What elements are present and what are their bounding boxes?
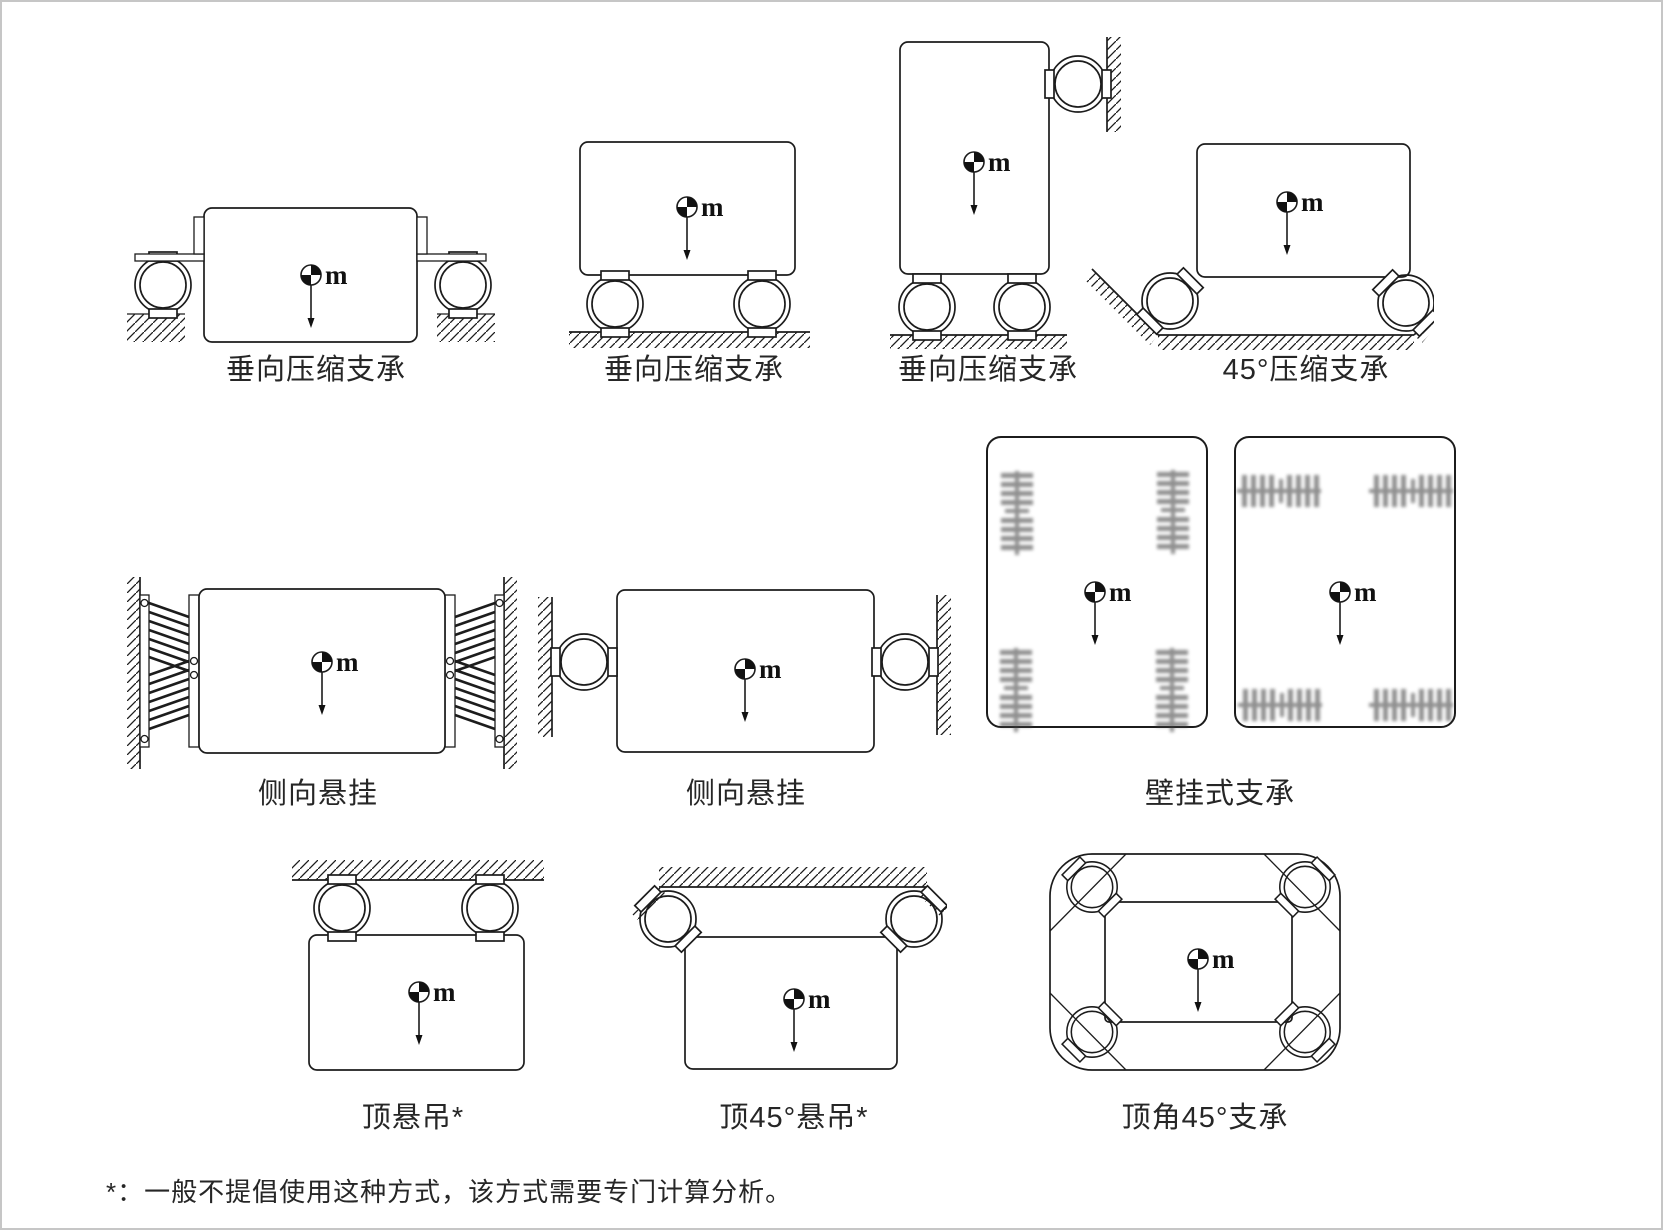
diagram-drawing: m: [602, 847, 947, 1087]
mass-label: m: [701, 192, 724, 222]
wire-rope-isolator-icon: [994, 274, 1050, 340]
hatched-wall: [127, 577, 140, 769]
diagram-caption: 顶悬吊*: [263, 1094, 563, 1136]
diagram-drawing: m: [552, 127, 822, 352]
mass-label: m: [1301, 187, 1324, 217]
diagram-caption: 垂向压缩支承: [166, 346, 466, 388]
diagram-caption: 顶角45°支承: [1055, 1094, 1355, 1136]
mass-label: m: [988, 147, 1011, 177]
flange-lip: [417, 217, 427, 254]
mounting-plate: [140, 595, 149, 747]
wire-rope-isolator-icon: [872, 634, 938, 690]
wire-rope-isolator-icon: [551, 634, 617, 690]
diagram-caption: 侧向悬挂: [168, 770, 468, 812]
isolator-mounting-diagram-page: m 垂向压缩支承 m 垂向压缩支承 m 垂向压缩支承: [0, 0, 1663, 1230]
mass-label: m: [325, 260, 348, 290]
diagram-caption: 顶45°悬吊*: [644, 1094, 944, 1136]
coil-spring-isolator-icon: [149, 603, 189, 729]
mass-label: m: [808, 984, 831, 1014]
diagram-drawing: m: [282, 842, 582, 1087]
diagram-lateral-suspension-coil: m: [127, 557, 517, 779]
hatched-wall: [538, 597, 552, 737]
mass-label: m: [336, 647, 359, 677]
diagram-drawing: m m: [982, 427, 1462, 739]
flange-plate: [417, 254, 486, 261]
flange-lip: [194, 217, 204, 254]
wire-rope-isolator-icon: [899, 274, 955, 340]
diagram-caption: 侧向悬挂: [596, 770, 896, 812]
wire-rope-isolator-icon: [462, 875, 518, 941]
flange-plate: [135, 254, 204, 261]
wire-rope-isolator-icon: [314, 875, 370, 941]
diagram-vertical-compression-flange-mount: m: [117, 197, 507, 357]
diagram-drawing: m: [1062, 127, 1434, 362]
diagram-top-suspension: m: [282, 842, 582, 1087]
diagram-caption: 垂向压缩支承: [544, 346, 844, 388]
diagram-top-45deg-suspension: m: [602, 847, 947, 1087]
mass-label: m: [1354, 577, 1377, 607]
diagram-compression-45deg: m: [1062, 127, 1434, 362]
hatched-slope: [1084, 269, 1158, 345]
diagram-drawing: m: [117, 197, 507, 357]
mass-label: m: [1109, 577, 1132, 607]
hatched-wall: [937, 595, 951, 735]
diagram-drawing: m: [127, 557, 517, 779]
mass-label: m: [1212, 944, 1235, 974]
mass-label: m: [759, 654, 782, 684]
wire-rope-isolator-icon: [435, 252, 491, 318]
footnote-text: *：一般不提倡使用这种方式，该方式需要专门计算分析。: [106, 1172, 792, 1209]
diagram-drawing: m: [1042, 847, 1354, 1082]
wire-rope-isolator-icon: [1045, 56, 1111, 112]
mass-label: m: [433, 977, 456, 1007]
diagram-wall-mounted-support: m m: [982, 427, 1462, 739]
hatched-ceiling: [659, 867, 927, 887]
wire-rope-isolator-icon: [734, 271, 790, 337]
diagram-lateral-suspension-ring: m: [507, 557, 957, 782]
diagram-top-corner-45deg-support: m: [1042, 847, 1354, 1082]
diagram-drawing: m: [507, 557, 957, 782]
wire-rope-isolator-icon: [587, 271, 643, 337]
coil-spring-isolator-icon: [455, 603, 495, 729]
wire-rope-isolator-icon: [135, 252, 191, 318]
diagram-vertical-compression-base-mount: m: [552, 127, 822, 352]
diagram-caption: 45°压缩支承: [1156, 346, 1456, 388]
mounting-plate: [495, 595, 504, 747]
diagram-caption: 壁挂式支承: [1070, 770, 1370, 812]
